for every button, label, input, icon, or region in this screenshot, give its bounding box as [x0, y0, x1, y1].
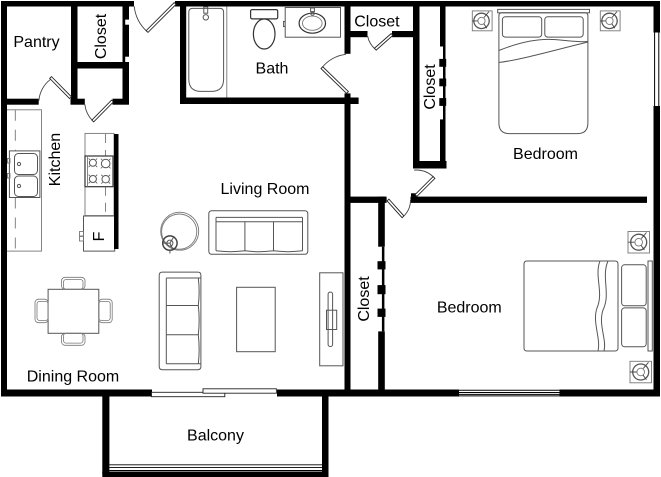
svg-text:Closet: Closet	[354, 13, 400, 30]
svg-text:Pantry: Pantry	[13, 34, 59, 51]
svg-text:Bedroom: Bedroom	[513, 146, 578, 163]
svg-text:Closet: Closet	[93, 13, 110, 59]
svg-text:Living Room: Living Room	[221, 181, 310, 198]
svg-text:Kitchen: Kitchen	[47, 133, 64, 186]
svg-text:F: F	[91, 231, 108, 241]
svg-text:Balcony: Balcony	[187, 428, 244, 445]
svg-text:Closet: Closet	[356, 276, 373, 322]
svg-text:Closet: Closet	[422, 64, 439, 110]
svg-text:Bedroom: Bedroom	[437, 300, 502, 317]
svg-text:Bath: Bath	[256, 61, 289, 78]
svg-text:Dining Room: Dining Room	[27, 369, 119, 386]
